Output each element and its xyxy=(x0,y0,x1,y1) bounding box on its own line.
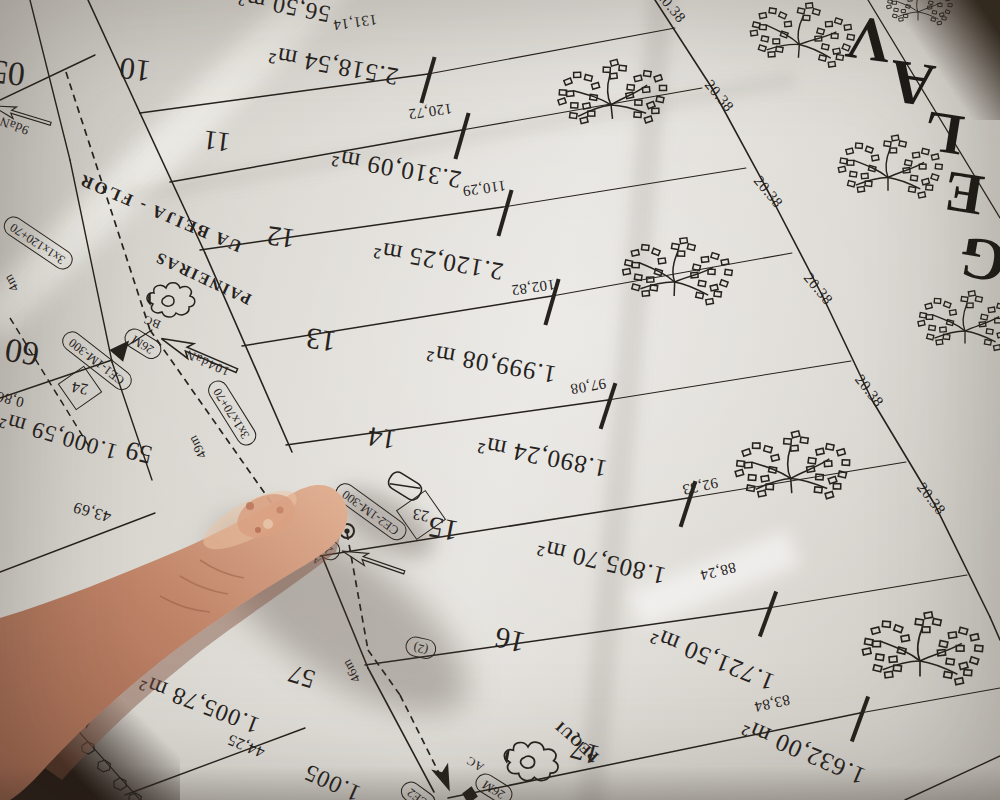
skin-spot xyxy=(246,502,254,510)
skin-spot xyxy=(277,507,284,514)
skin-spot xyxy=(255,527,261,533)
plat-photo: 0510111213141516175759602.518,54 m²2.310… xyxy=(0,0,1000,800)
skin-spot xyxy=(263,519,273,529)
finger-body xyxy=(0,485,348,800)
finger xyxy=(0,0,1000,800)
